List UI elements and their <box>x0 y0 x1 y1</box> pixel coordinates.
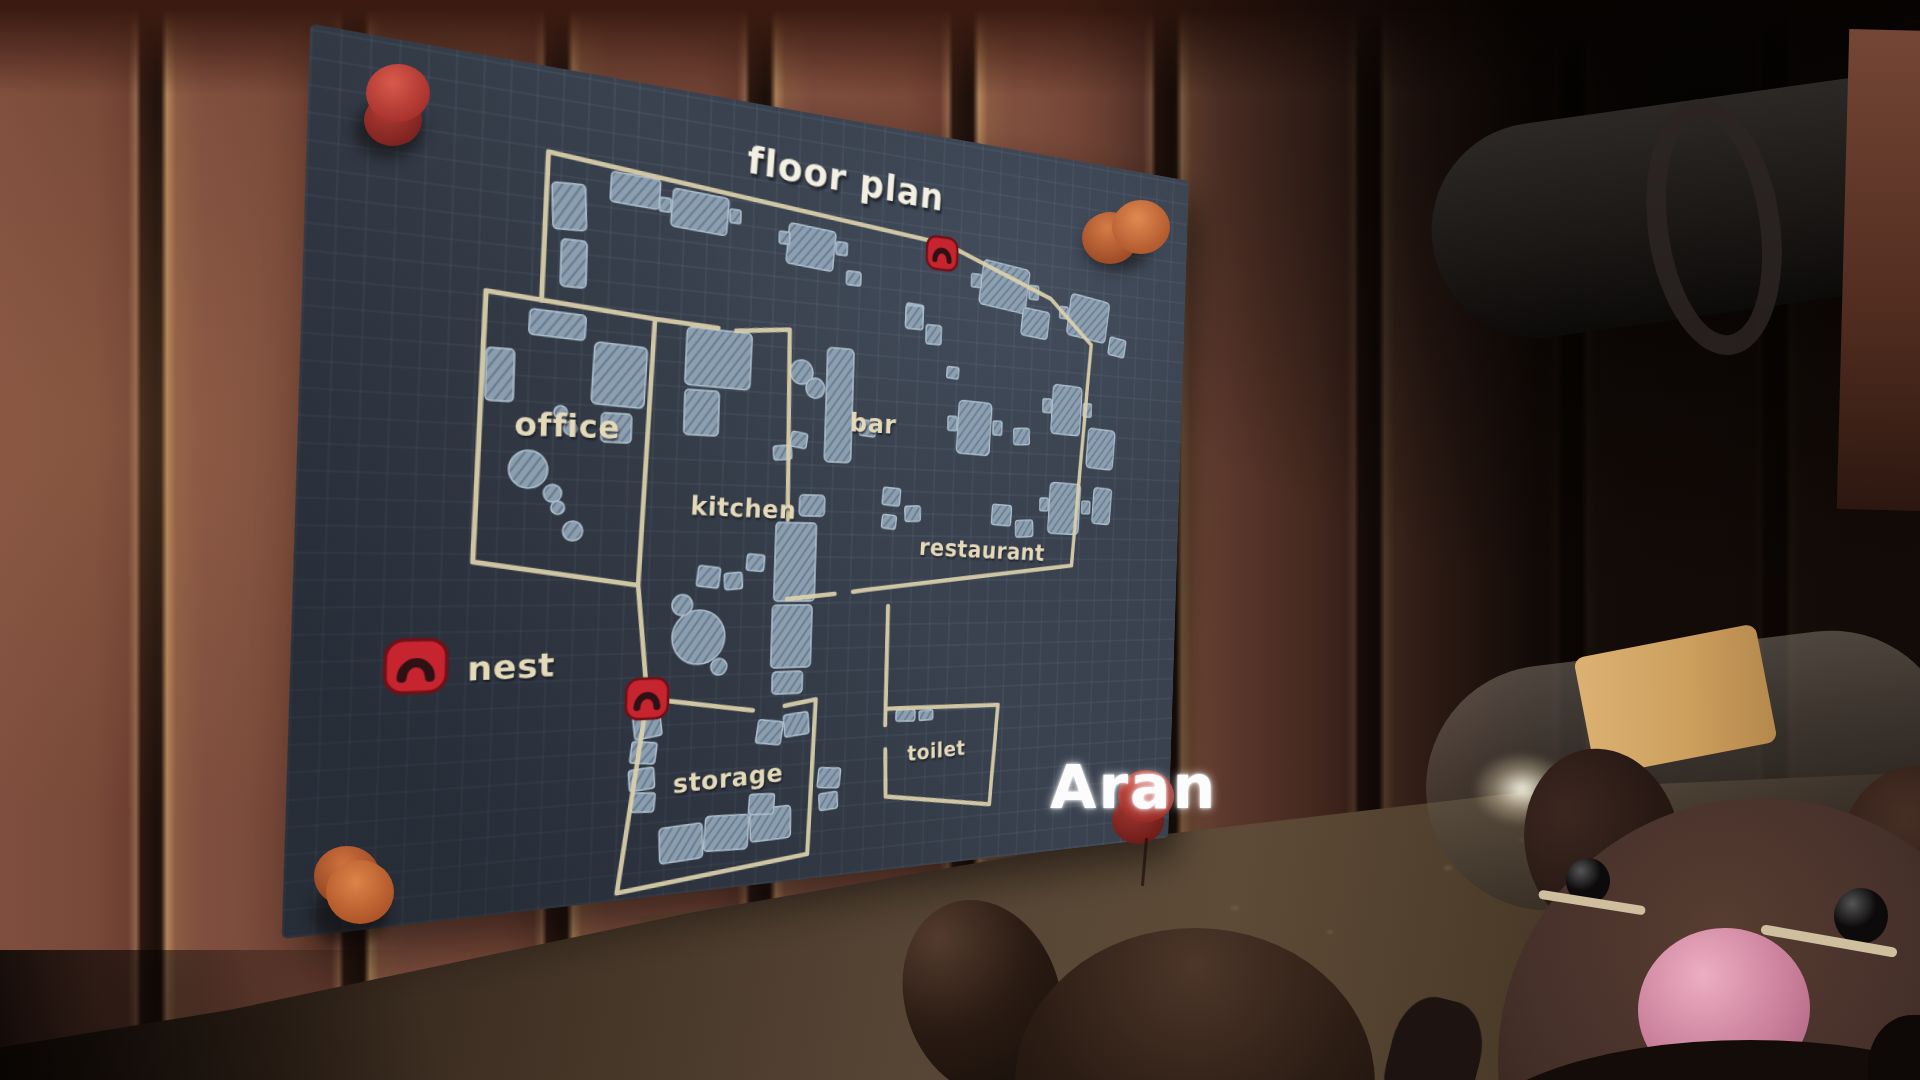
player-nameplate: Aran <box>1050 752 1217 822</box>
furniture-shapes <box>470 154 1129 884</box>
room-label-kitchen: kitchen <box>690 491 797 525</box>
nest-marker-storage <box>625 678 668 720</box>
nest-legend-icon <box>384 639 447 694</box>
nest-marker-top <box>926 235 957 271</box>
nest-legend-label: nest <box>467 646 555 689</box>
game-scene: floor plan office kitchen bar restaurant… <box>0 0 1920 1080</box>
pushpin-orange-bottom-left <box>308 838 428 958</box>
room-label-bar: bar <box>849 406 897 439</box>
floor-shadow <box>0 950 520 1080</box>
pushpin-red-top-left <box>352 60 462 170</box>
ceiling-shadow <box>0 0 1920 95</box>
wood-pillar <box>1837 29 1920 511</box>
pushpin-orange-right <box>1078 188 1188 288</box>
room-label-office: office <box>514 405 621 446</box>
rat-eye-right <box>1834 888 1888 944</box>
